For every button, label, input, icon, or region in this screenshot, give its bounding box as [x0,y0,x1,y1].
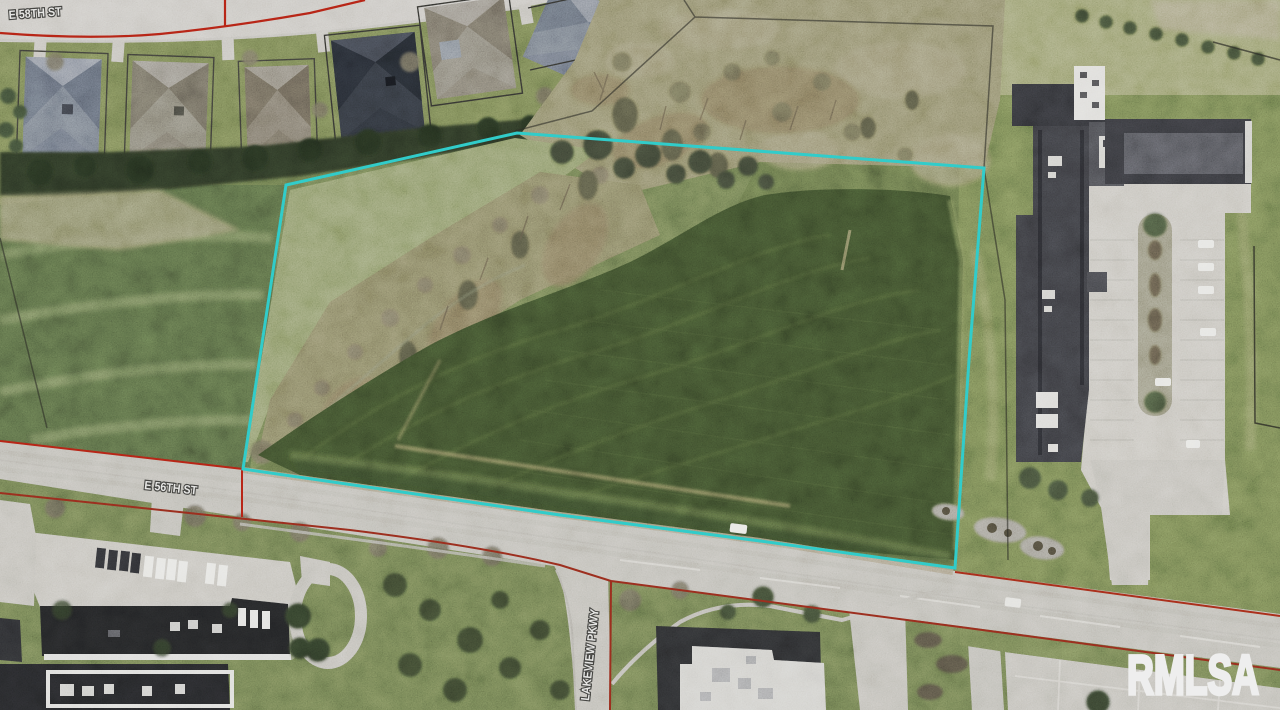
svg-text:RMLSA: RMLSA [1127,643,1259,706]
